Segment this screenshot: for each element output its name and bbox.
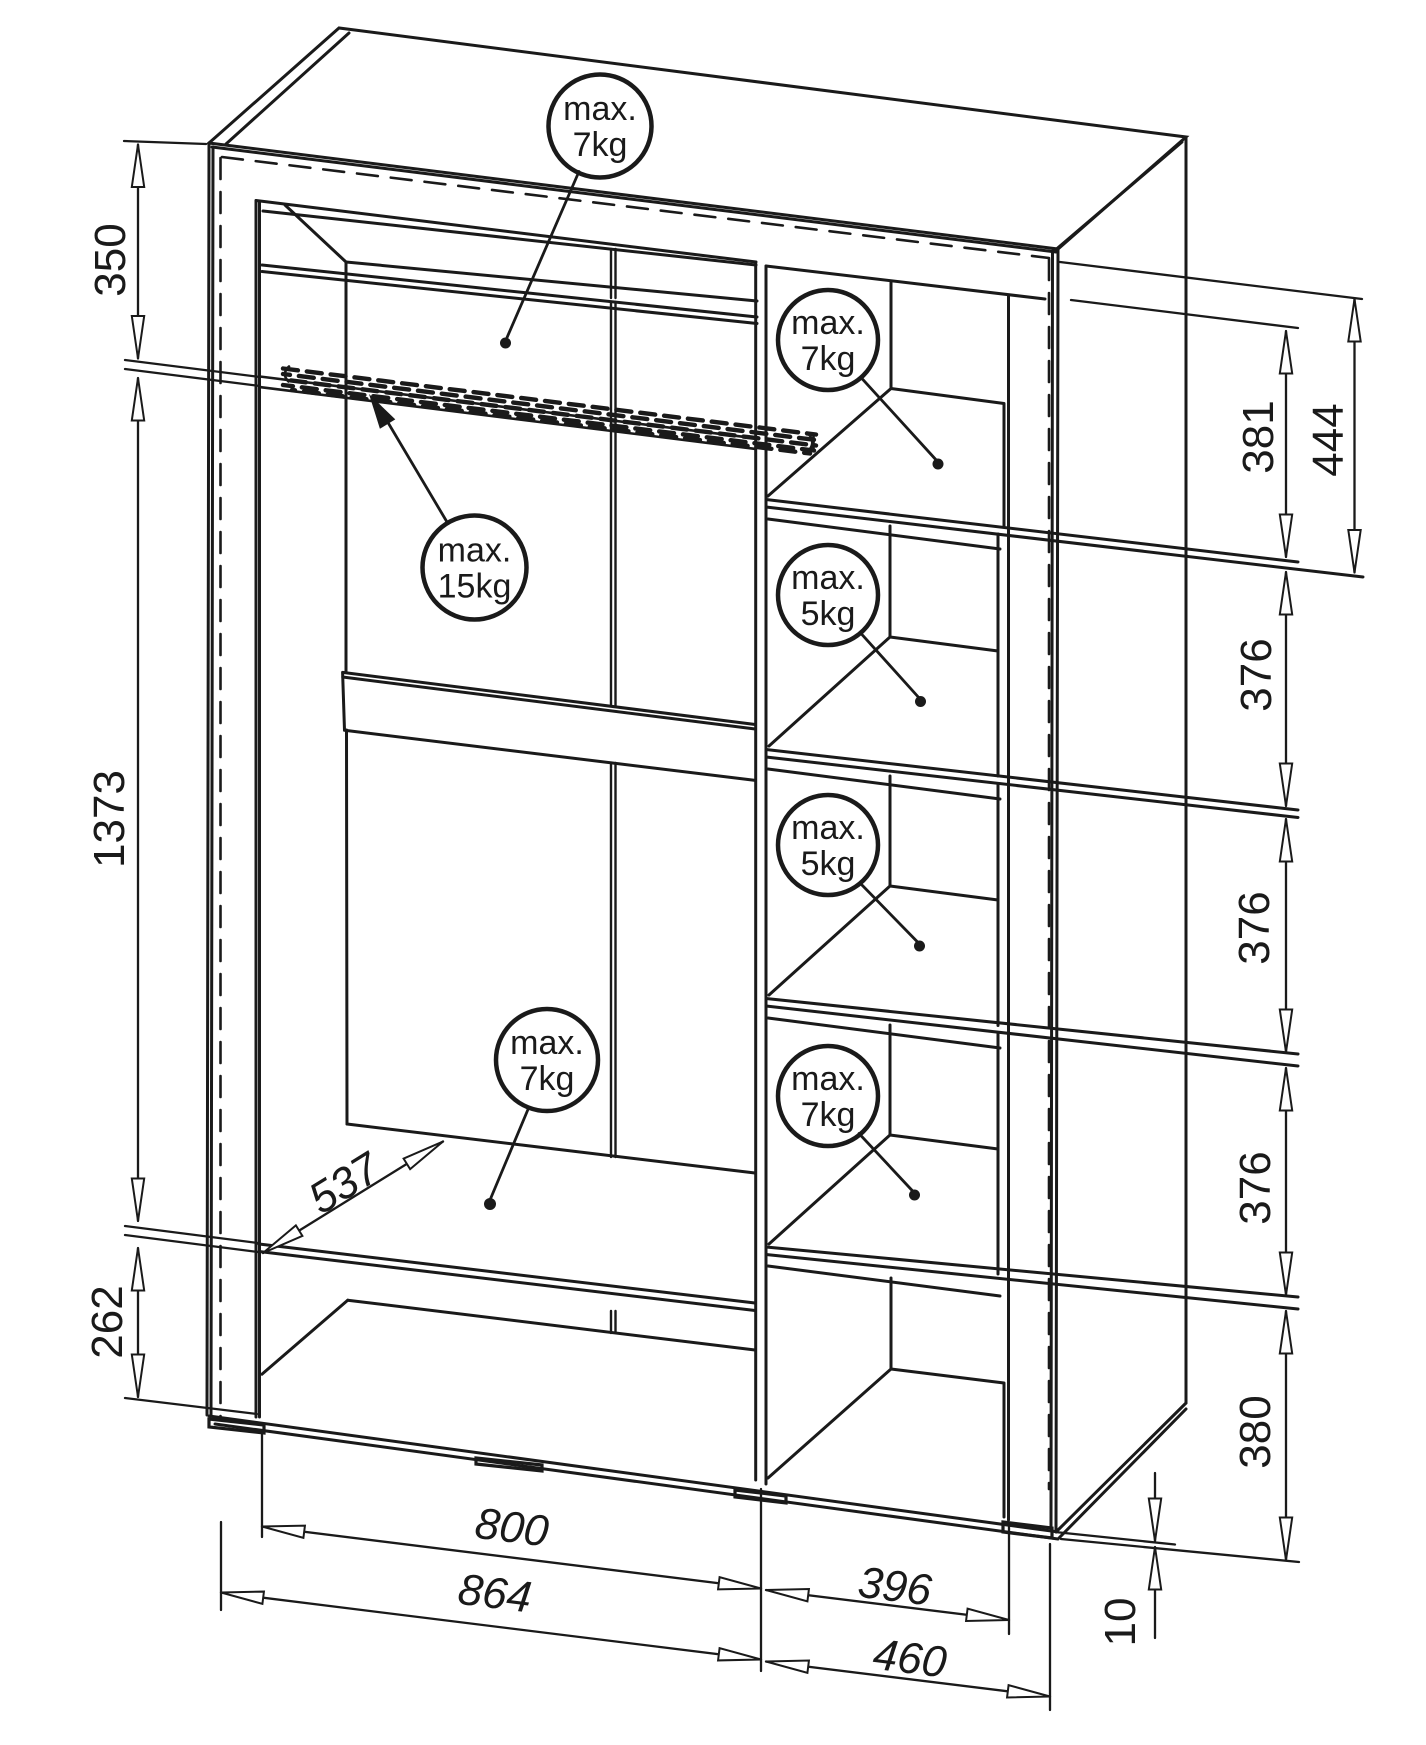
svg-text:max.: max. <box>510 1024 584 1062</box>
svg-text:5kg: 5kg <box>801 595 856 633</box>
svg-text:max.: max. <box>438 532 512 570</box>
svg-text:376: 376 <box>1230 891 1279 964</box>
svg-text:max.: max. <box>563 90 637 128</box>
svg-text:262: 262 <box>83 1285 132 1358</box>
svg-text:864: 864 <box>455 1565 534 1623</box>
svg-text:537: 537 <box>300 1143 390 1224</box>
svg-text:800: 800 <box>472 1499 551 1557</box>
svg-text:444: 444 <box>1304 403 1353 476</box>
svg-text:460: 460 <box>870 1630 949 1688</box>
svg-text:max.: max. <box>791 559 865 597</box>
svg-text:7kg: 7kg <box>520 1060 575 1098</box>
svg-text:max.: max. <box>791 809 865 847</box>
svg-text:396: 396 <box>855 1558 934 1616</box>
svg-text:381: 381 <box>1234 400 1283 473</box>
svg-text:1373: 1373 <box>85 770 134 868</box>
svg-text:7kg: 7kg <box>801 1096 856 1134</box>
svg-text:10: 10 <box>1096 1598 1145 1647</box>
svg-text:380: 380 <box>1231 1395 1280 1468</box>
svg-text:15kg: 15kg <box>438 568 512 606</box>
svg-text:376: 376 <box>1232 638 1281 711</box>
svg-text:7kg: 7kg <box>801 340 856 378</box>
svg-text:5kg: 5kg <box>801 845 856 883</box>
svg-text:max.: max. <box>791 304 865 342</box>
svg-text:7kg: 7kg <box>573 126 628 164</box>
svg-text:376: 376 <box>1231 1151 1280 1224</box>
svg-text:max.: max. <box>791 1060 865 1098</box>
svg-text:350: 350 <box>86 223 135 296</box>
